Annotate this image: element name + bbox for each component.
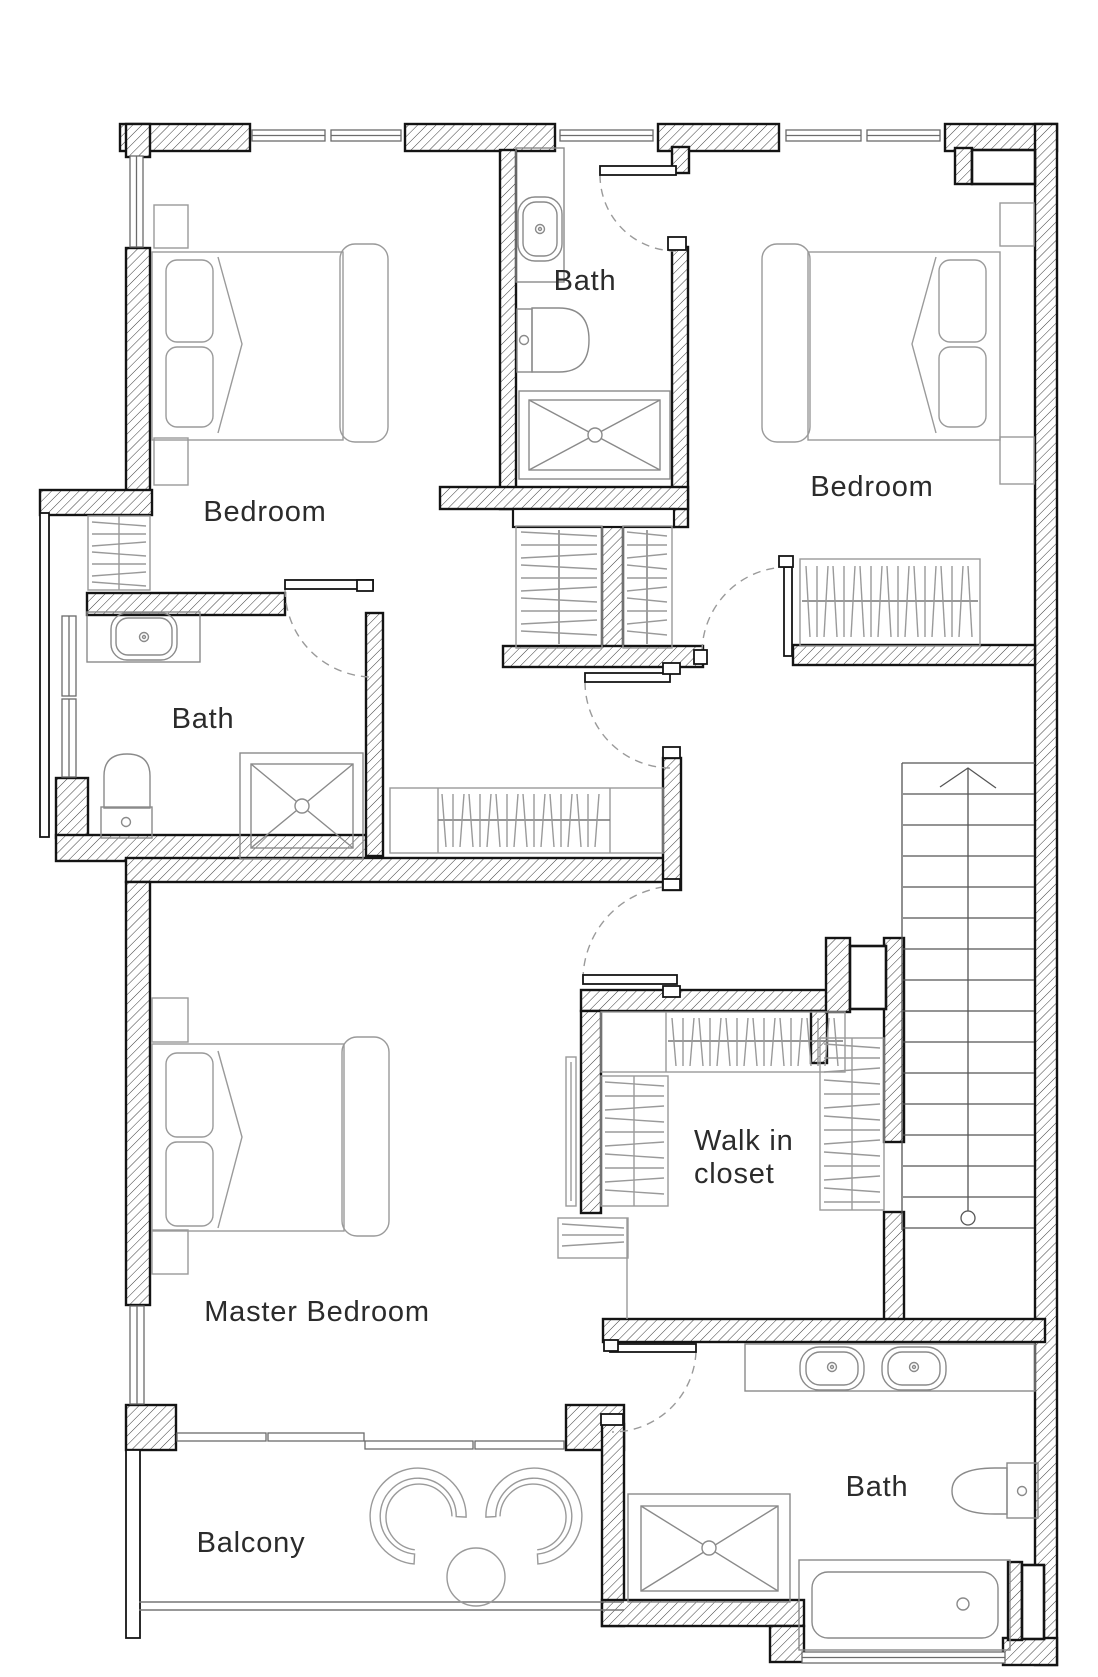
- door-stop: [601, 1414, 623, 1425]
- door-stop: [663, 879, 680, 890]
- window: [786, 130, 861, 141]
- door-stop: [663, 663, 680, 674]
- wall-segment: [366, 613, 383, 856]
- window: [331, 130, 401, 141]
- threshold: [513, 509, 674, 527]
- window: [802, 1652, 1005, 1663]
- window: [560, 130, 653, 141]
- window: [62, 699, 76, 777]
- label-master-bedroom: Master Bedroom: [204, 1296, 430, 1328]
- wall-segment: [884, 1212, 904, 1322]
- door-leaf: [784, 567, 792, 656]
- wall-segment: [663, 758, 681, 890]
- wall-segment: [672, 247, 688, 527]
- label-walk-in-closet-2: closet: [694, 1158, 775, 1190]
- wall-segment: [811, 1011, 827, 1063]
- wall-segment: [56, 778, 88, 838]
- niche: [972, 150, 1035, 184]
- wall-segment: [126, 1405, 176, 1450]
- door-stop: [668, 237, 686, 250]
- wall-segment: [602, 1600, 804, 1626]
- wall-segment: [1035, 124, 1057, 1665]
- door-stop: [779, 556, 793, 567]
- floor-plan-page: Bedroom Bath Bedroom Bath Master Bedroom…: [0, 0, 1098, 1677]
- label-bedroom-top-left: Bedroom: [203, 496, 326, 528]
- window: [130, 1306, 144, 1404]
- label-balcony: Balcony: [197, 1527, 306, 1559]
- door-stop: [663, 986, 680, 997]
- wall-segment: [603, 1319, 1045, 1342]
- door-stop: [694, 650, 707, 664]
- door-leaf: [583, 975, 677, 984]
- label-bath-left: Bath: [172, 703, 235, 735]
- wall-segment: [126, 248, 150, 492]
- niche: [850, 946, 886, 1009]
- wall-segment: [440, 487, 688, 509]
- window: [867, 130, 940, 141]
- wall-segment: [1003, 1638, 1057, 1665]
- door-leaf: [585, 673, 670, 682]
- label-walk-in-closet-1: Walk in: [694, 1125, 794, 1157]
- wall-segment: [500, 150, 516, 509]
- wall-segment: [602, 524, 623, 655]
- bath-left-outer-wall: [40, 513, 49, 837]
- floor-plan-canvas: Bedroom Bath Bedroom Bath Master Bedroom…: [0, 0, 1098, 1677]
- door-leaf: [610, 1344, 696, 1352]
- wall-segment: [793, 645, 1035, 665]
- wall-segment: [126, 882, 150, 1305]
- wall-segment: [126, 858, 666, 882]
- wall-segment: [126, 124, 150, 157]
- door-stop: [663, 747, 680, 758]
- label-bath-top: Bath: [554, 265, 617, 297]
- door-leaf: [600, 166, 676, 175]
- niche: [1022, 1565, 1044, 1639]
- window: [62, 616, 76, 696]
- window: [252, 130, 325, 141]
- door-stop: [357, 580, 373, 591]
- door-stop: [604, 1340, 618, 1351]
- wall-segment: [955, 148, 972, 184]
- wall-segment: [405, 124, 555, 151]
- window: [130, 156, 143, 247]
- wall-segment: [581, 1011, 601, 1213]
- label-bedroom-top-right: Bedroom: [810, 471, 933, 503]
- balcony-pillar: [126, 1450, 140, 1638]
- wall-segment: [40, 490, 152, 515]
- wall-segment: [581, 990, 827, 1011]
- wall-segment: [826, 938, 850, 1012]
- label-bath-bottom: Bath: [846, 1471, 909, 1503]
- wall-segment: [602, 1424, 624, 1626]
